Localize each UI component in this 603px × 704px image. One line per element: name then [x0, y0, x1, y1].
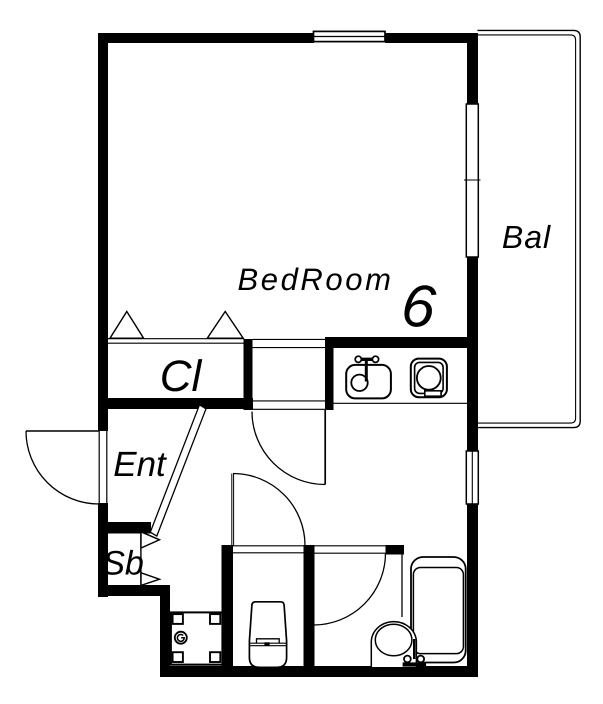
svg-text:Bal: Bal: [502, 219, 551, 255]
svg-text:Sb: Sb: [102, 544, 144, 582]
svg-text:BedRoom: BedRoom: [237, 262, 393, 297]
svg-text:Ent: Ent: [113, 445, 167, 484]
svg-text:Cl: Cl: [160, 352, 203, 401]
